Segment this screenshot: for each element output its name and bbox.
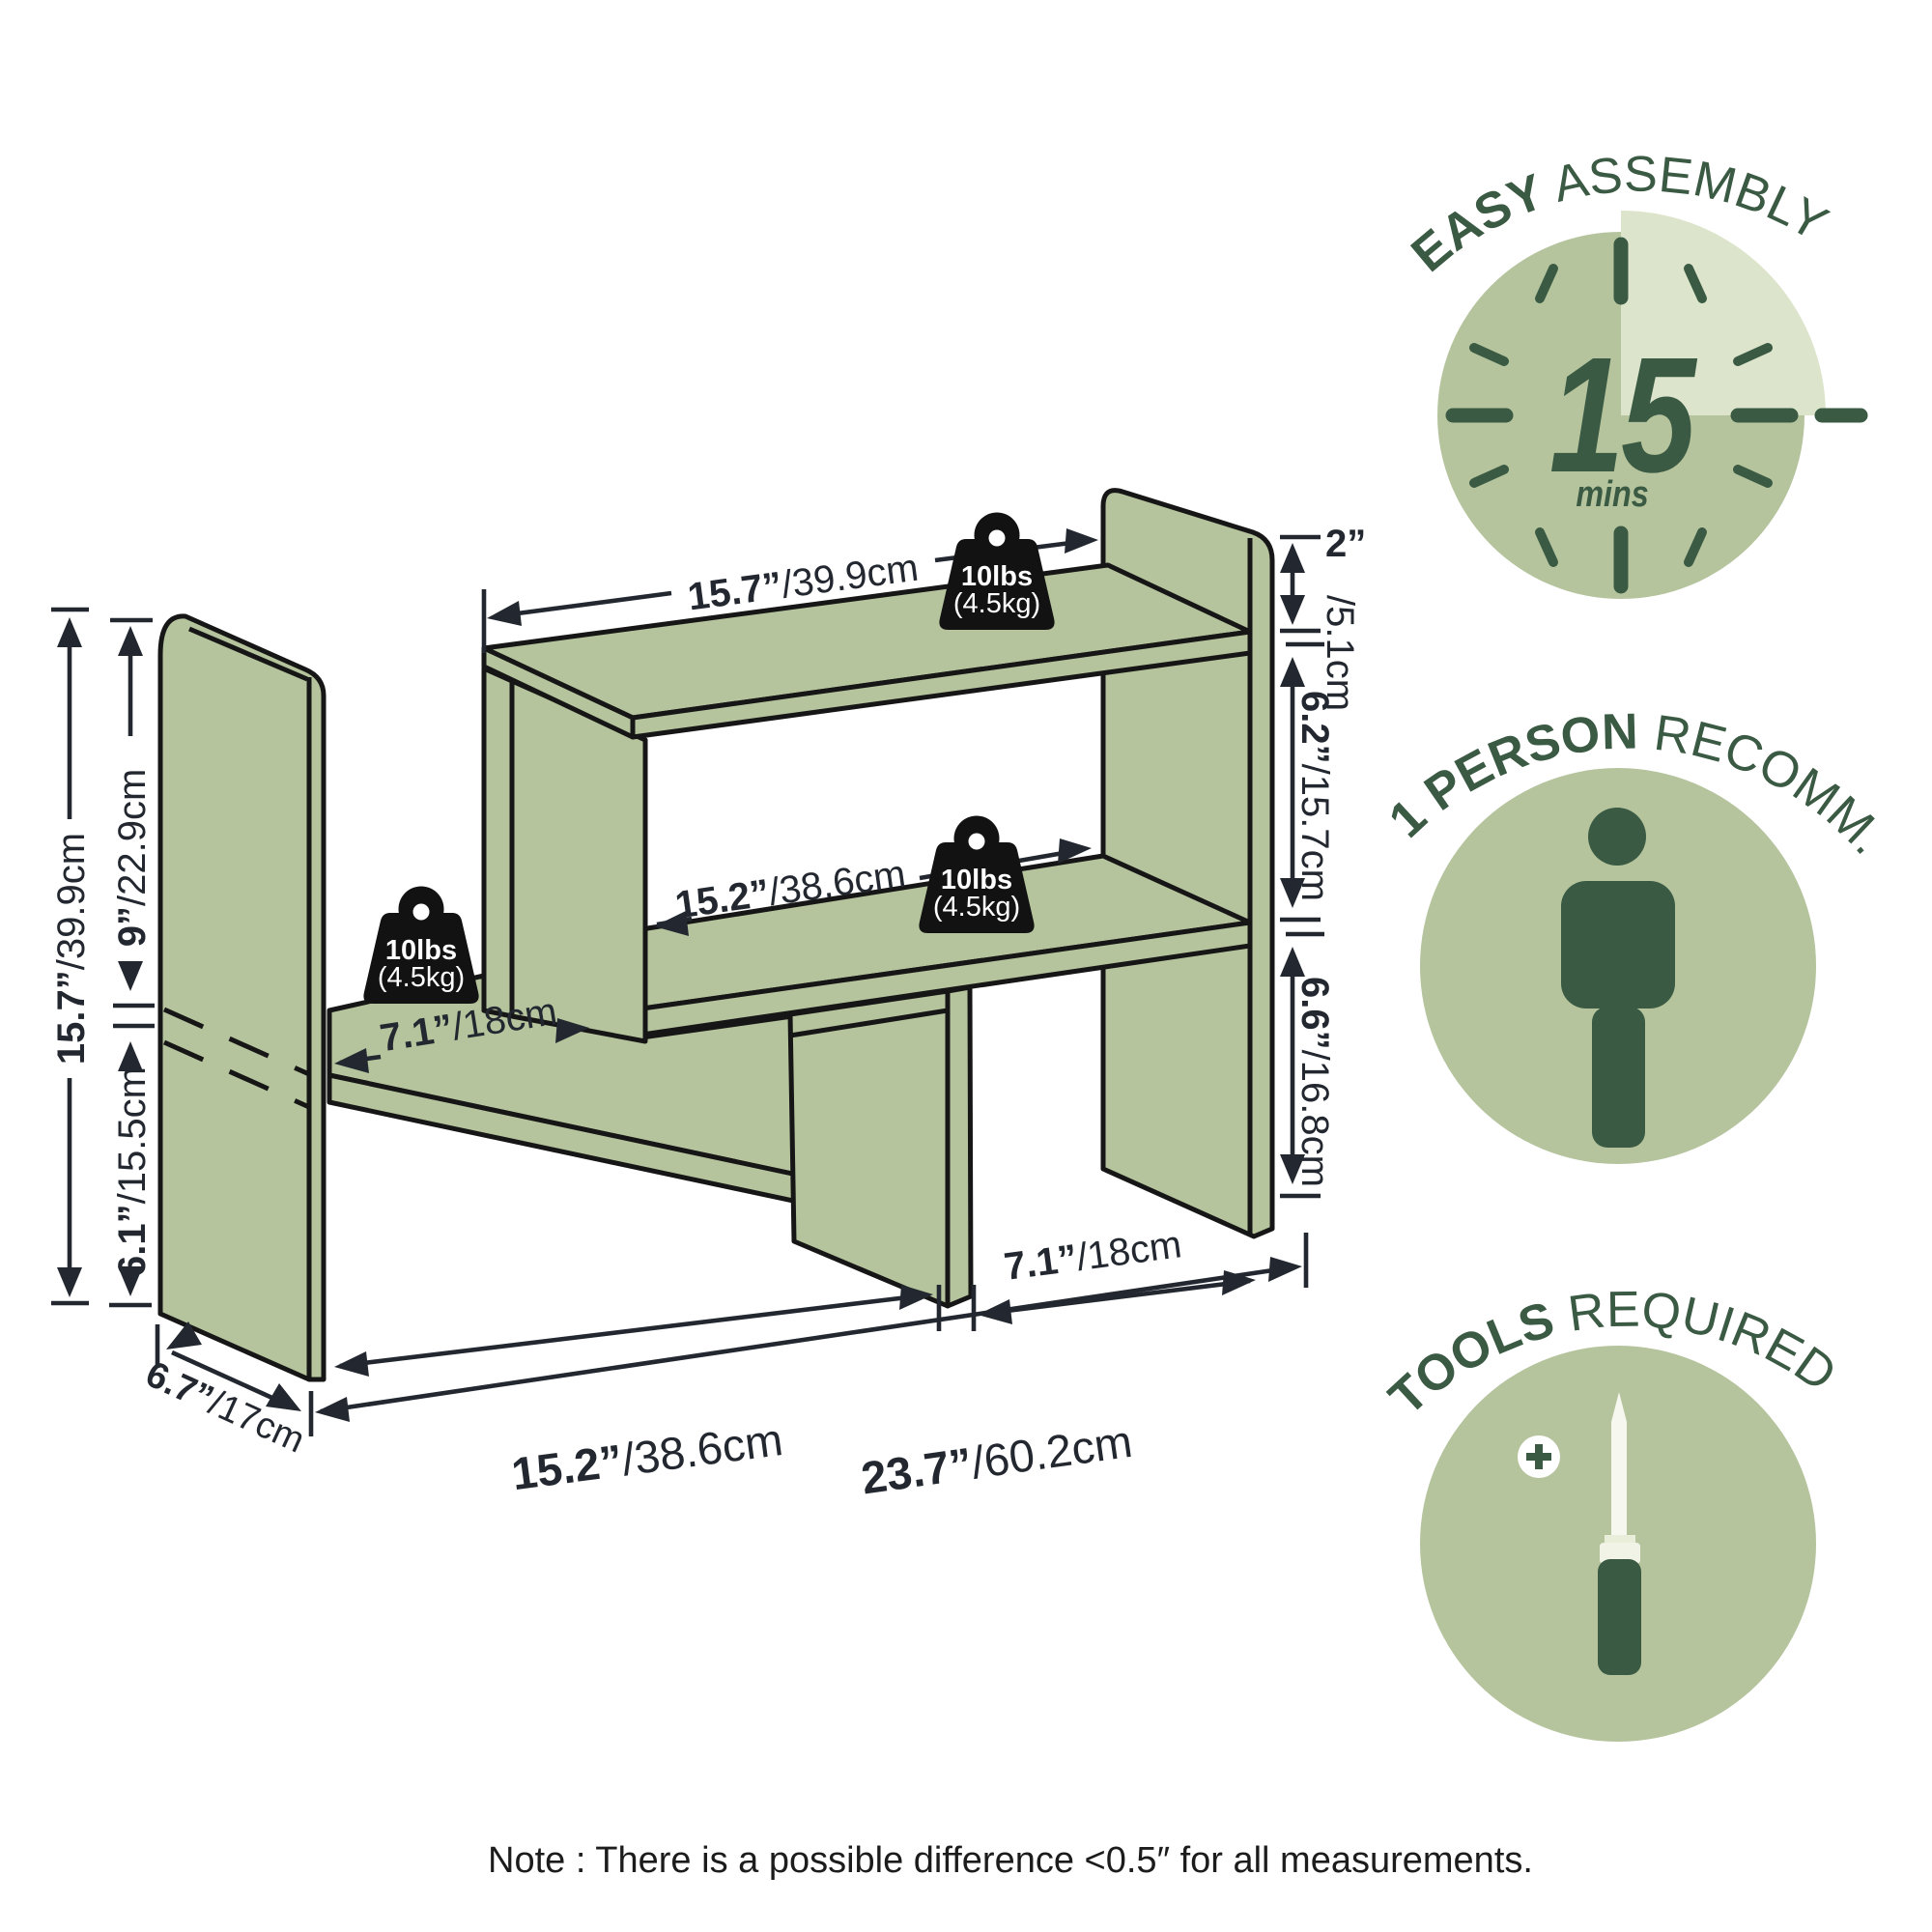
svg-text:(4.5kg): (4.5kg) [933,892,1020,923]
svg-text:(4.5kg): (4.5kg) [953,588,1040,619]
svg-text:6.1”/15.5cm: 6.1”/15.5cm [111,1066,154,1277]
svg-text:mins: mins [1576,474,1648,515]
svg-text:Note : There is a possible dif: Note : There is a possible difference <0… [488,1840,1533,1881]
svg-text:9”/22.9cm: 9”/22.9cm [111,769,154,948]
svg-text:6.2”/15.7cm: 6.2”/15.7cm [1293,691,1336,901]
svg-text:2”: 2” [1325,523,1366,565]
svg-text:15.7”/39.9cm: 15.7”/39.9cm [50,833,93,1065]
svg-text:(4.5kg): (4.5kg) [378,962,465,993]
svg-text:6.6”/16.8cm: 6.6”/16.8cm [1293,977,1336,1187]
